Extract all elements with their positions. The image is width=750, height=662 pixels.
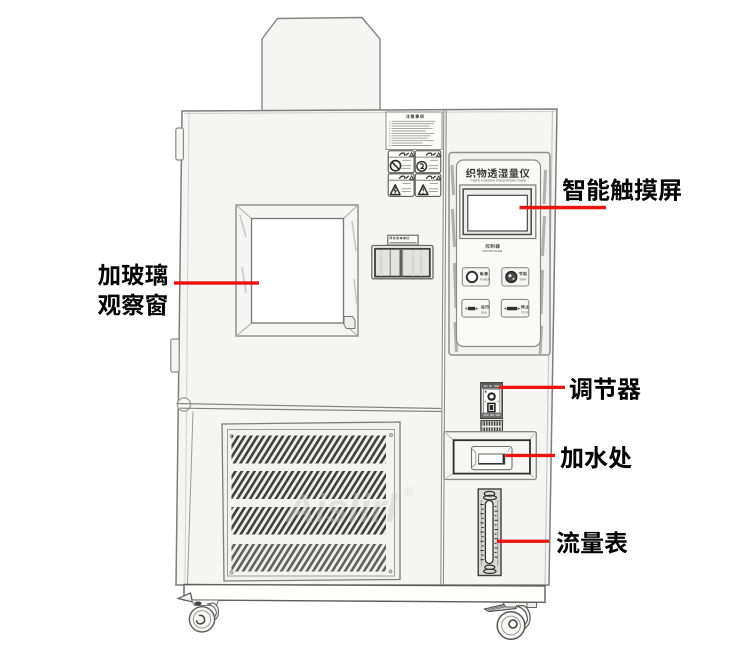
svg-text:STOP: STOP: [521, 310, 528, 314]
svg-text:Aislirl: Aislirl: [285, 487, 398, 531]
svg-text:®: ®: [404, 484, 414, 499]
svg-text:POWER: POWER: [480, 277, 490, 281]
svg-text:CONTROLLER: CONTROLLER: [482, 249, 503, 253]
svg-text:Fabric moisture transmission m: Fabric moisture transmission meter: [470, 178, 527, 182]
svg-text:RUN: RUN: [481, 310, 487, 314]
svg-text:TEMP: TEMP: [519, 277, 526, 281]
